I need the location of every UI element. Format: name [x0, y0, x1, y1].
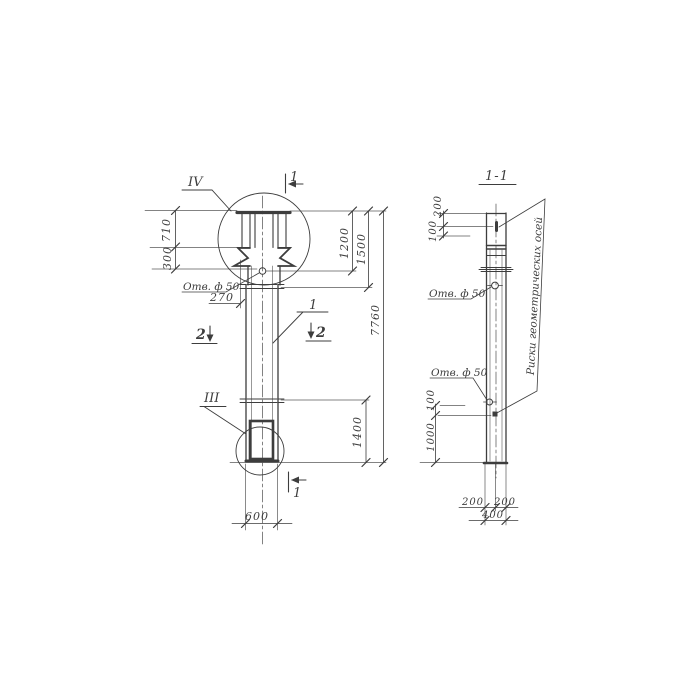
detail-circle-III [236, 427, 284, 475]
axes-note: Риски геометрических осей [525, 216, 545, 376]
dim-600: 600 [245, 510, 269, 523]
detail-label-III: III [203, 391, 220, 406]
section-hole-note-lower: Отв. ф 50 [431, 367, 488, 379]
front-corbel-left [234, 248, 250, 266]
part-ref-label: 1 [309, 298, 317, 313]
section1-bottom-label: 1 [293, 486, 301, 501]
section-hole-lower-leader [430, 378, 487, 400]
front-view [145, 174, 388, 546]
section2-left-arrowhead [207, 335, 214, 343]
section2-right-label: 2 [315, 325, 326, 341]
dim-710: 710 [160, 218, 173, 242]
dim-100-low: 100 [426, 389, 437, 411]
drawing-canvas: IV III 1 1 2 2 1 Отв. ф 50 710 300 270 1… [0, 0, 700, 700]
section2-right-arrowhead [308, 332, 315, 340]
dim-1200: 1200 [338, 227, 351, 259]
detail-IV-leader [182, 190, 231, 211]
section2-left-label: 2 [195, 327, 206, 343]
dim-200-b: 200 [493, 497, 516, 508]
technical-drawing-sheet: IV III 1 1 2 2 1 Отв. ф 50 710 300 270 1… [0, 0, 700, 700]
section-hole-upper [492, 282, 499, 289]
detail-III-leader [200, 407, 246, 435]
detail-label-IV: IV [187, 175, 204, 190]
dim-100-top: 100 [428, 220, 439, 242]
dim-7760: 7760 [369, 304, 382, 336]
section1-top-label: 1 [290, 170, 298, 185]
dim-1000: 1000 [426, 422, 437, 451]
dim-1500: 1500 [355, 233, 368, 265]
section1-bottom-arrowhead [291, 477, 299, 484]
front-cap-block [242, 214, 286, 248]
section-hole-note-upper: Отв. ф 50 [429, 288, 486, 300]
section-title: 1-1 [485, 169, 509, 184]
dim-300: 300 [161, 246, 174, 270]
dim-270: 270 [209, 291, 234, 304]
front-corbel-right [278, 248, 294, 266]
dim-200-top: 200 [433, 195, 444, 218]
dim-200-a: 200 [461, 497, 484, 508]
dim-1400: 1400 [351, 416, 364, 448]
dim-400: 400 [481, 510, 504, 521]
